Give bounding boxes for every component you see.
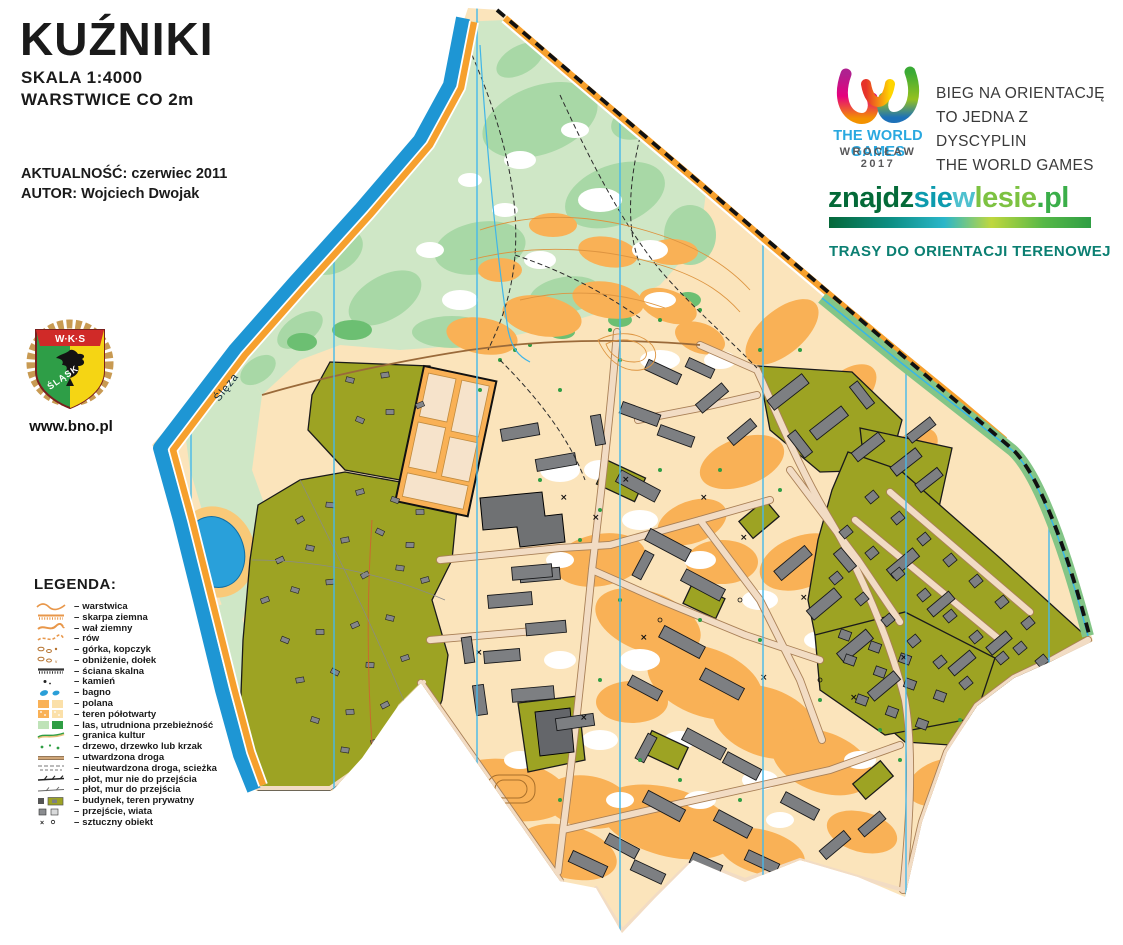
svg-text:×: × bbox=[700, 493, 708, 503]
map-title: KUŹNIKI bbox=[20, 12, 214, 66]
legend-item-label: skarpa ziemna bbox=[82, 612, 147, 623]
legend-item: –górka, kopczyk bbox=[34, 644, 217, 655]
crest-initials: W·K·S bbox=[55, 334, 85, 345]
rockwall-icon bbox=[34, 666, 68, 676]
earthwall-icon bbox=[34, 623, 68, 633]
legend-item-label: polana bbox=[82, 698, 113, 709]
svg-text:×: × bbox=[475, 648, 483, 658]
legend-item: –drzewo, drzewko lub krzak bbox=[34, 741, 217, 752]
map-sheet: ×××××××××××× bbox=[0, 0, 1123, 945]
svg-text:×: × bbox=[622, 475, 630, 485]
paved-icon bbox=[34, 753, 68, 763]
legend-item: –płot, mur nie do przejścia bbox=[34, 774, 217, 785]
legend-item: –wał ziemny bbox=[34, 623, 217, 634]
world-games-logo bbox=[836, 66, 920, 126]
legend-item-label: granica kultur bbox=[82, 730, 145, 741]
legend-item: –warstwica bbox=[34, 601, 217, 612]
svg-text:×: × bbox=[592, 513, 600, 523]
world-games-tagline: BIEG NA ORIENTACJĘTO JEDNA Z DYSCYPLINTH… bbox=[936, 82, 1123, 178]
legend-item-label: sztuczny obiekt bbox=[82, 817, 153, 828]
legend-item-label: wał ziemny bbox=[82, 623, 132, 634]
map-author: AUTOR: Wojciech Dwojak bbox=[21, 186, 199, 202]
legend-item: –budynek, teren prywatny bbox=[34, 795, 217, 806]
world-games-tagline-line: TO JEDNA Z DYSCYPLIN bbox=[936, 106, 1123, 154]
contour-interval: WARSTWICE CO 2m bbox=[21, 90, 194, 110]
tree-icon bbox=[34, 742, 68, 752]
stone-icon bbox=[34, 677, 68, 687]
artificial-icon: × bbox=[34, 817, 68, 827]
svg-text:×: × bbox=[640, 633, 648, 643]
legend-item-label: płot, mur nie do przejścia bbox=[82, 774, 197, 785]
legend-item: –przejście, wiata bbox=[34, 806, 217, 817]
legend-item: –las, utrudniona przebieżność bbox=[34, 720, 217, 731]
legend-item-label: las, utrudniona przebieżność bbox=[82, 720, 213, 731]
world-games-tagline-line: BIEG NA ORIENTACJĘ bbox=[936, 82, 1123, 106]
legend-item: –ściana skalna bbox=[34, 666, 217, 677]
domain-part: sie bbox=[914, 182, 953, 214]
legend-item: –granica kultur bbox=[34, 731, 217, 742]
wks-slask-crest: W·K·S ŚLĄSK bbox=[26, 316, 114, 414]
legend-item: –teren półotwarty bbox=[34, 709, 217, 720]
legend-title: LEGENDA: bbox=[34, 576, 217, 593]
legend-item: –kamień bbox=[34, 677, 217, 688]
fence-pass-icon bbox=[34, 785, 68, 795]
fence-imp-icon bbox=[34, 774, 68, 784]
svg-text:v: v bbox=[55, 659, 58, 664]
legend-item: –płot, mur do przejścia bbox=[34, 785, 217, 796]
znajdziewlesie-tagline: TRASY DO ORIENTACJI TERENOWEJ bbox=[829, 243, 1111, 260]
legend-item: –polana bbox=[34, 698, 217, 709]
world-games-city: WROCŁAW 2017 bbox=[820, 146, 936, 170]
legend-item-label: kamień bbox=[82, 676, 115, 687]
legend-item-label: bagno bbox=[82, 687, 111, 698]
domain-part: znajdz bbox=[828, 182, 914, 214]
contour-icon bbox=[34, 601, 68, 611]
legend: LEGENDA: –warstwica–skarpa ziemna–wał zi… bbox=[34, 576, 217, 828]
legend-item: –utwardzona droga bbox=[34, 752, 217, 763]
znajdziewlesie-gradient-bar bbox=[829, 217, 1091, 228]
world-games-tagline-line: THE WORLD GAMES bbox=[936, 154, 1123, 178]
legend-item: –bagno bbox=[34, 687, 217, 698]
knoll-icon bbox=[34, 645, 68, 655]
legend-item-label: górka, kopczyk bbox=[82, 644, 151, 655]
legend-item-label: drzewo, drzewko lub krzak bbox=[82, 741, 202, 752]
legend-item-label: przejście, wiata bbox=[82, 806, 152, 817]
legend-item-label: rów bbox=[82, 633, 99, 644]
cultivation-icon bbox=[34, 731, 68, 741]
building-icon bbox=[34, 796, 68, 806]
earthbank-icon bbox=[34, 612, 68, 622]
legend-item: –rów bbox=[34, 633, 217, 644]
domain-part: lesie bbox=[975, 182, 1037, 214]
znajdziewlesie-logo[interactable]: znajdzsiewlesie.pl bbox=[828, 182, 1069, 215]
svg-text:×: × bbox=[40, 820, 44, 827]
legend-item-label: obniżenie, dołek bbox=[82, 655, 156, 666]
website-link[interactable]: www.bno.pl bbox=[28, 418, 114, 435]
map-currency: AKTUALNOŚĆ: czerwiec 2011 bbox=[21, 166, 227, 182]
legend-item-label: utwardzona droga bbox=[82, 752, 164, 763]
legend-item-label: płot, mur do przejścia bbox=[82, 784, 180, 795]
marsh-icon bbox=[34, 688, 68, 698]
svg-text:×: × bbox=[560, 493, 568, 503]
unpaved-icon bbox=[34, 763, 68, 773]
legend-item-label: budynek, teren prywatny bbox=[82, 795, 194, 806]
legend-item-label: nieutwardzona droga, scieżka bbox=[82, 763, 217, 774]
depression-icon: v bbox=[34, 655, 68, 665]
legend-item: –skarpa ziemna bbox=[34, 612, 217, 623]
svg-text:×: × bbox=[740, 533, 748, 543]
legend-item-label: ściana skalna bbox=[82, 666, 144, 677]
semiopen-icon bbox=[34, 709, 68, 719]
ditch-icon bbox=[34, 634, 68, 644]
forest-icon bbox=[34, 720, 68, 730]
canopy-icon bbox=[34, 807, 68, 817]
clearing-icon bbox=[34, 699, 68, 709]
legend-item: v–obniżenie, dołek bbox=[34, 655, 217, 666]
svg-text:×: × bbox=[580, 713, 588, 723]
svg-text:×: × bbox=[760, 673, 768, 683]
svg-text:×: × bbox=[800, 593, 808, 603]
legend-item: ×–sztuczny obiekt bbox=[34, 817, 217, 828]
domain-part: w bbox=[952, 182, 974, 214]
legend-item: –nieutwardzona droga, scieżka bbox=[34, 763, 217, 774]
legend-item-label: warstwica bbox=[82, 601, 127, 612]
map-scale: SKALA 1:4000 bbox=[21, 68, 143, 88]
svg-text:×: × bbox=[850, 693, 858, 703]
domain-part: .pl bbox=[1037, 182, 1069, 214]
legend-item-label: teren półotwarty bbox=[82, 709, 156, 720]
